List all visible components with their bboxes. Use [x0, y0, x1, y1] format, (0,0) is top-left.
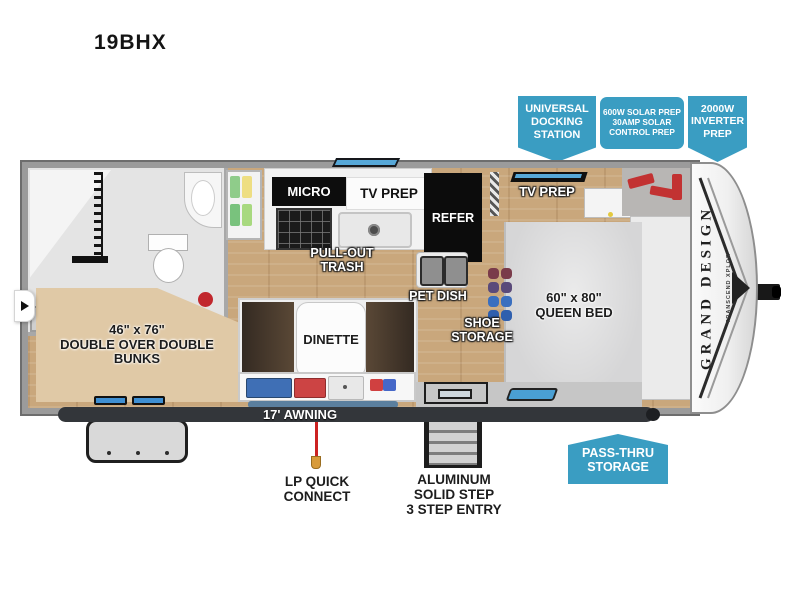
shower-door-base [72, 256, 108, 263]
pull-out-trash-label: PULL-OUT TRASH [300, 246, 384, 274]
tv-screen [515, 174, 582, 178]
stored-gear [672, 174, 682, 200]
cabinet-knob-icon [608, 212, 613, 217]
sink-drain-icon [368, 224, 380, 236]
room-divider-icon [490, 172, 499, 216]
tv-prep-kitchen-label: TV PREP [346, 177, 432, 210]
bedroom-tv-icon [510, 172, 587, 182]
dinette-seat [366, 302, 414, 376]
latch-dot-icon [136, 451, 140, 455]
bathroom-sink-bowl [191, 180, 215, 216]
shower [30, 170, 122, 282]
queen-bed-label: 60" x 80" QUEEN BED [535, 291, 612, 320]
shower-door-icon [94, 172, 101, 260]
entry-door-mat-inner [438, 389, 472, 399]
lp-hose-icon [315, 422, 318, 458]
pet-dish-bowl [420, 256, 444, 286]
board-game [294, 378, 326, 398]
bunks-label: 46" x 76" DOUBLE OVER DOUBLE BUNKS [60, 323, 214, 367]
front-cap: GRAND DESIGN TRANSCEND XPLOR [690, 162, 758, 414]
lp-connector-icon [311, 456, 321, 469]
refrigerator-label: REFER [424, 173, 482, 262]
latch-dot-icon [165, 451, 169, 455]
pet-dish-bowl [444, 256, 468, 286]
bunk-mat [94, 396, 127, 405]
tv-prep-bedroom-label: TV PREP [505, 185, 589, 200]
game-console [383, 379, 396, 391]
entry-rug [506, 388, 559, 401]
shoe-storage-label: SHOE STORAGE [440, 316, 524, 344]
dinette-table: DINETTE [296, 302, 366, 378]
dinette-label: DINETTE [303, 333, 359, 348]
pet-dish-label: PET DISH [396, 289, 480, 303]
window-icon [332, 158, 400, 167]
dinette-seat [242, 302, 294, 376]
brand-logo: GRAND DESIGN [694, 164, 720, 412]
step-entry-label: ALUMINUM SOLID STEP 3 STEP ENTRY [406, 472, 502, 517]
pantry-bin [242, 176, 252, 198]
board-game [246, 378, 292, 398]
right-arrow-icon [21, 301, 29, 311]
pantry-bin [230, 204, 240, 226]
badge-inverter-prep: 2000W INVERTER PREP [688, 96, 747, 162]
drawer-knob-icon [343, 385, 347, 389]
pantry-bin [242, 204, 252, 226]
toilet-icon [153, 248, 184, 283]
shoes-icon [488, 282, 512, 293]
shower-door-rail [101, 172, 103, 260]
stove-icon [276, 208, 332, 250]
toy-ball-icon [198, 292, 213, 307]
next-arrow-button[interactable] [14, 290, 35, 322]
awning-label: 17' AWNING [250, 408, 350, 423]
badge-solar-prep: 600W SOLAR PREP 30AMP SOLAR CONTROL PREP [600, 97, 684, 149]
shoes-icon [488, 268, 512, 279]
hitch-coupler-icon [772, 286, 781, 298]
bunk-mat [132, 396, 165, 405]
badge-pass-thru-storage: PASS-THRU STORAGE [568, 434, 668, 484]
brand-series-label: TRANSCEND XPLOR [726, 253, 732, 323]
microwave-label: MICRO [272, 177, 346, 206]
badge-universal-docking-station: UNIVERSAL DOCKING STATION [518, 96, 596, 162]
latch-dot-icon [107, 451, 111, 455]
entry-steps-icon [424, 422, 482, 468]
shoes-icon [488, 296, 512, 307]
game-console [370, 379, 383, 391]
lp-quick-connect-label: LP QUICK CONNECT [272, 474, 362, 504]
queen-bed: 60" x 80" QUEEN BED [504, 222, 642, 400]
trailer-body: LINEN MICRO TV PREP REFER 60" x 80" [22, 162, 698, 414]
awning-end-cap [646, 408, 660, 421]
exterior-compartment-door [86, 419, 188, 463]
awning-bar [58, 407, 654, 422]
pantry-bin [230, 176, 240, 198]
floorplan-page: 19BHX UNIVERSAL DOCKING STATION 600W SOL… [0, 0, 800, 600]
page-title: 19BHX [94, 31, 167, 55]
